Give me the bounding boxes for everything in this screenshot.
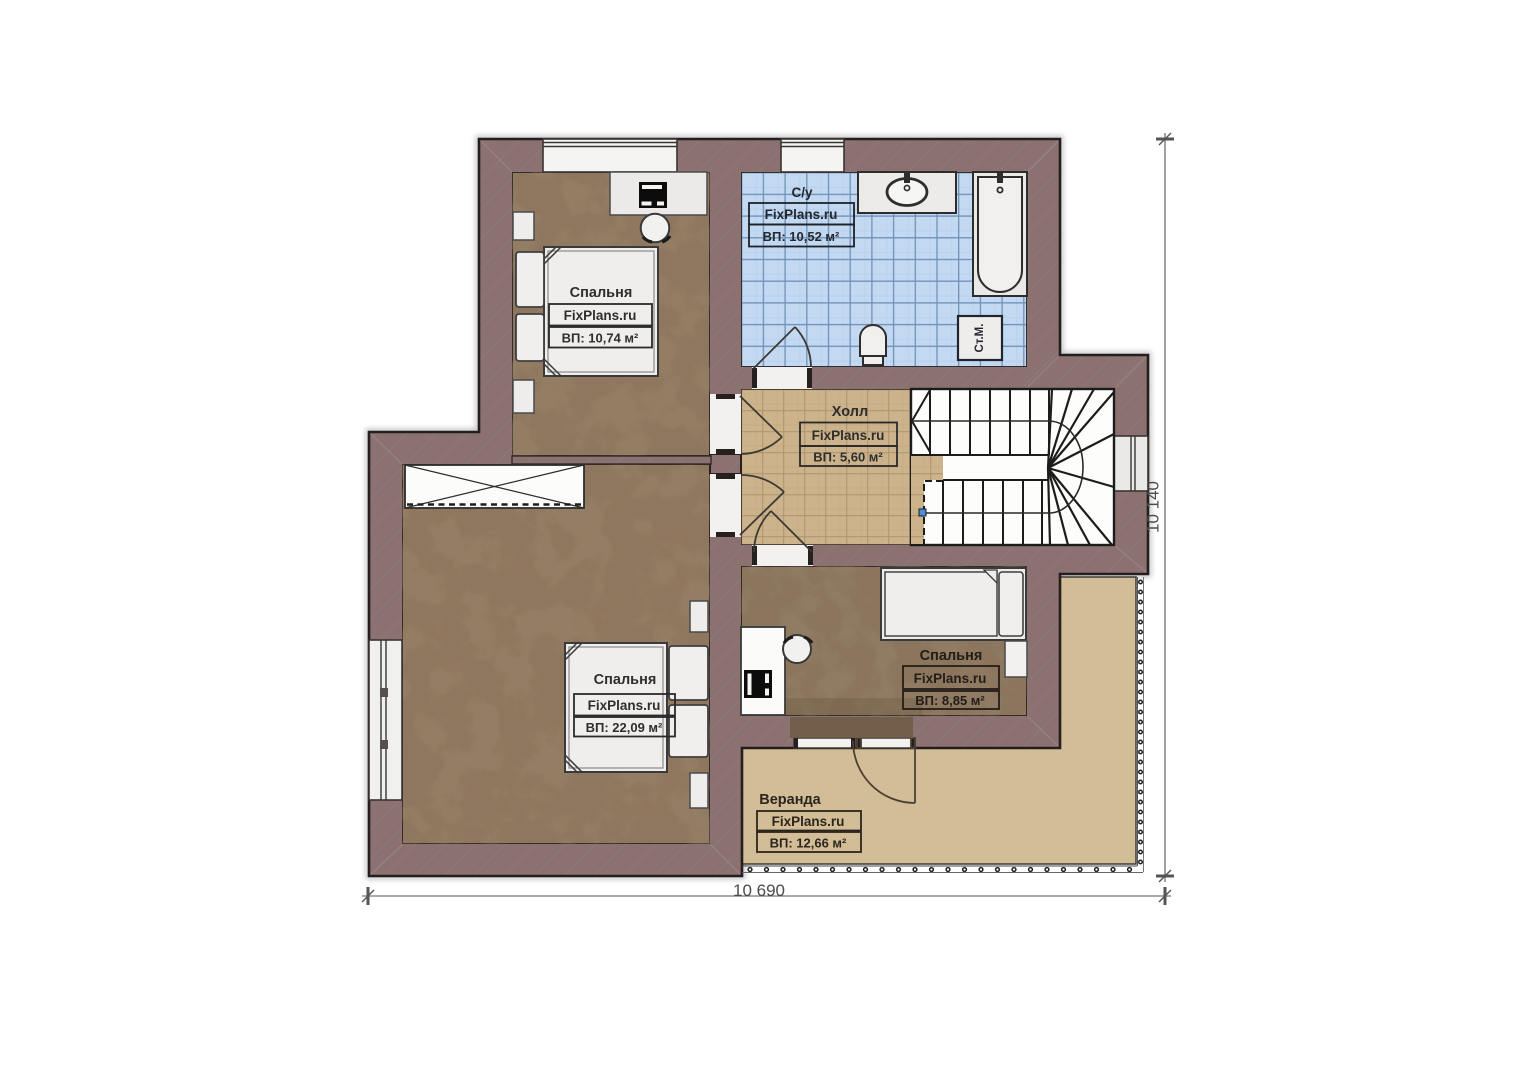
svg-text:FixPlans.ru: FixPlans.ru	[564, 308, 637, 323]
svg-text:С/у: С/у	[791, 185, 813, 200]
svg-text:FixPlans.ru: FixPlans.ru	[812, 428, 885, 443]
svg-text:ВП: 10,52 м²: ВП: 10,52 м²	[763, 229, 840, 244]
svg-text:ВП: 12,66 м²: ВП: 12,66 м²	[770, 836, 847, 851]
svg-text:Ст.М.: Ст.М.	[974, 324, 986, 353]
svg-text:ВП: 10,74 м²: ВП: 10,74 м²	[562, 331, 639, 346]
svg-text:Веранда: Веранда	[759, 792, 821, 808]
svg-text:Холл: Холл	[832, 404, 868, 420]
svg-text:ВП: 5,60 м²: ВП: 5,60 м²	[813, 450, 883, 465]
svg-text:10 690: 10 690	[733, 881, 785, 900]
svg-text:ВП: 22,09 м²: ВП: 22,09 м²	[586, 720, 663, 735]
svg-text:Спальня: Спальня	[920, 648, 983, 664]
svg-text:10 140: 10 140	[1144, 481, 1163, 533]
svg-text:Спальня: Спальня	[570, 285, 633, 301]
svg-text:ВП: 8,85 м²: ВП: 8,85 м²	[915, 693, 985, 708]
svg-text:Спальня: Спальня	[594, 672, 657, 688]
svg-text:FixPlans.ru: FixPlans.ru	[772, 814, 845, 829]
svg-text:FixPlans.ru: FixPlans.ru	[588, 698, 661, 713]
svg-text:FixPlans.ru: FixPlans.ru	[914, 671, 987, 686]
svg-text:FixPlans.ru: FixPlans.ru	[765, 207, 838, 222]
